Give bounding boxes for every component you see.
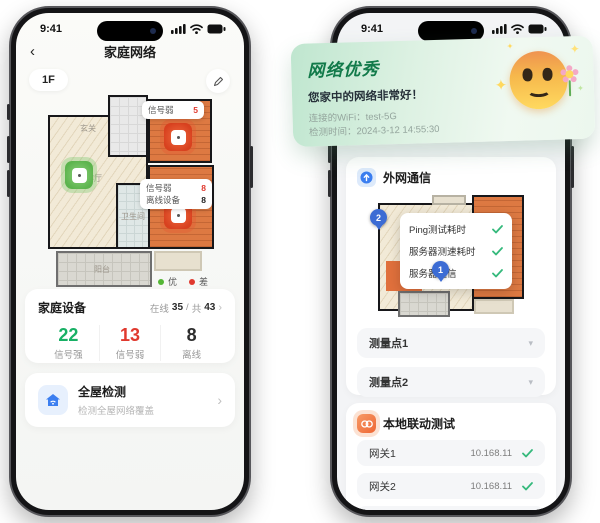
online-value: 35 — [172, 302, 183, 313]
room-label-bathroom: 卫生间 — [121, 211, 145, 222]
marker-signal-weak-top[interactable] — [164, 123, 192, 151]
gateway-ip: 10.168.11 — [470, 481, 512, 492]
status-time: 9:41 — [361, 23, 383, 35]
legend-bad-dot — [189, 279, 195, 285]
phone-left: 9:41 ‹ 家庭网络 1F — [9, 6, 251, 517]
badge-weak-top[interactable]: 信号弱 5 — [142, 101, 204, 119]
badge-label: 信号弱 — [148, 104, 174, 116]
whole-home-check-button[interactable]: 全屋检测 检测全屋网络覆盖 › — [25, 373, 235, 427]
flower-icon — [565, 70, 573, 78]
detect-subtitle: 检测全屋网络覆盖 — [78, 403, 207, 417]
mini-closet — [432, 195, 466, 205]
navbar: ‹ 家庭网络 — [16, 43, 244, 63]
network-result-card: 网络优秀 您家中的网络非常好！ 连接的WiFi：test-5G 检测时间：202… — [291, 36, 596, 147]
wan-test-card: 外网通信 2 1 Ping测试耗时 — [346, 157, 556, 395]
stat-offline: 8 离线 — [160, 325, 222, 361]
sun-eye — [522, 68, 532, 81]
tooltip-row: 服务器通信 — [409, 262, 503, 284]
chevron-right-icon: › — [217, 395, 222, 405]
sparkle-icon: ✦ — [495, 76, 508, 94]
edit-button[interactable] — [206, 69, 230, 93]
devices-title: 家庭设备 — [38, 299, 86, 316]
stat-strong: 22 信号强 — [38, 325, 99, 361]
sun-face — [509, 50, 569, 110]
battery-icon — [207, 24, 226, 34]
signal-icon — [171, 24, 186, 34]
chevron-down-icon: ▾ — [528, 377, 533, 388]
stat-weak: 13 信号弱 — [99, 325, 161, 361]
tooltip-row: Ping测试耗时 — [409, 218, 503, 240]
dynamic-island — [97, 21, 163, 41]
chevron-right-icon: › — [218, 303, 222, 313]
count-divider: / — [186, 302, 189, 313]
chevron-down-icon: ▾ — [528, 338, 533, 349]
wifi-icon — [511, 24, 524, 34]
page-title: 家庭网络 — [16, 43, 244, 63]
stat-label: 信号强 — [38, 347, 99, 361]
stat-label: 信号弱 — [100, 347, 161, 361]
badge-value: 5 — [193, 104, 198, 116]
mini-balcony — [398, 291, 450, 317]
legend: 优 差 — [158, 275, 208, 288]
power-button[interactable] — [250, 146, 253, 188]
measure-point-label: 测量点2 — [369, 374, 408, 390]
link-icon — [357, 414, 376, 433]
gateway-row-3: 网关3 10.168.11 — [357, 506, 545, 510]
check-icon — [492, 269, 503, 278]
volume-up-button[interactable] — [7, 136, 10, 163]
check-icon — [492, 225, 503, 234]
legend-good-label: 优 — [168, 275, 177, 288]
pencil-icon — [213, 76, 224, 87]
badge-label: 信号弱 — [146, 182, 172, 194]
ping-result-tooltip: Ping测试耗时 服务器测速耗时 服务器通信 — [400, 213, 512, 289]
measure-point-2-row[interactable]: 测量点2 ▾ — [357, 367, 545, 397]
gateway-row-2: 网关2 10.168.11 — [357, 473, 545, 499]
power-button[interactable] — [571, 146, 574, 188]
flower-stem — [569, 80, 571, 96]
measure-point-1-row[interactable]: 测量点1 ▾ — [357, 328, 545, 358]
check-icon — [522, 449, 533, 458]
stat-label: 离线 — [161, 347, 222, 361]
battery-icon — [528, 24, 547, 34]
sun-eye — [542, 68, 552, 81]
tooltip-label: 服务器测速耗时 — [409, 244, 476, 258]
time-value: 2024-3-12 14:55:30 — [356, 124, 439, 137]
measure-pin-1[interactable]: 1 — [432, 261, 449, 278]
wifi-value: test-5G — [365, 111, 396, 123]
sparkle-icon: ✦ — [507, 42, 514, 51]
stat-value: 22 — [38, 325, 99, 345]
lan-test-card: 本地联动测试 网关1 10.168.11 网关2 10.168.11 — [346, 403, 556, 510]
room-stoop — [154, 251, 202, 271]
lan-section-title: 本地联动测试 — [383, 415, 455, 432]
room-label-entry: 玄关 — [80, 123, 96, 134]
signal-icon — [492, 24, 507, 34]
status-icons — [492, 24, 547, 34]
badge-weak-bottom[interactable]: 信号弱 8 离线设备 8 — [140, 179, 212, 209]
gateway-ip: 10.168.11 — [470, 448, 512, 459]
marker-signal-good[interactable] — [65, 161, 93, 189]
canvas: 9:41 ‹ 家庭网络 1F — [0, 0, 600, 523]
house-wifi-icon — [38, 385, 68, 415]
stat-value: 8 — [161, 325, 222, 345]
legend-bad-label: 差 — [199, 275, 208, 288]
badge-value: 8 — [201, 182, 206, 194]
legend-good-dot — [158, 279, 164, 285]
mini-stoop — [474, 299, 514, 314]
wifi-icon — [190, 24, 203, 34]
screen-left: 9:41 ‹ 家庭网络 1F — [16, 13, 244, 510]
gateway-label: 网关1 — [369, 446, 396, 461]
badge-label: 离线设备 — [146, 194, 180, 206]
gateway-label: 网关2 — [369, 479, 396, 494]
gateway-row-1: 网关1 10.168.11 — [357, 440, 545, 466]
volume-down-button[interactable] — [328, 170, 331, 197]
devices-count-link[interactable]: 在线 35 / 共 43 › — [150, 301, 222, 315]
check-icon — [492, 247, 503, 256]
volume-down-button[interactable] — [7, 170, 10, 197]
floor-selector-pill[interactable]: 1F — [29, 69, 68, 91]
back-button[interactable]: ‹ — [30, 43, 35, 61]
time-label: 检测时间： — [309, 126, 357, 138]
measure-pin-2[interactable]: 2 — [370, 209, 387, 226]
badge-value: 8 — [201, 194, 206, 206]
stat-value: 13 — [100, 325, 161, 345]
mute-switch[interactable] — [7, 104, 10, 120]
sparkle-icon: ✦ — [570, 42, 580, 56]
measure-point-label: 测量点1 — [369, 335, 408, 351]
check-icon — [522, 482, 533, 491]
total-value: 43 — [204, 302, 215, 313]
upload-arrow-icon — [357, 168, 376, 187]
wan-section-title: 外网通信 — [383, 169, 431, 186]
devices-card: 家庭设备 在线 35 / 共 43 › 22 信号强 — [25, 289, 235, 363]
floor-plan: 玄关 厨房 客厅 卫生间 阳台 信号弱 5 信号弱 8 — [46, 95, 218, 291]
tooltip-label: Ping测试耗时 — [409, 222, 466, 236]
total-label: 共 — [192, 301, 202, 315]
status-icons — [171, 24, 226, 34]
room-label-balcony: 阳台 — [94, 264, 110, 275]
status-time: 9:41 — [40, 23, 62, 35]
smiling-sun-emoji: ✦ ✦ ✦ ✦ — [509, 50, 569, 110]
device-stats: 22 信号强 13 信号弱 8 离线 — [38, 325, 222, 361]
online-label: 在线 — [150, 301, 169, 315]
detect-title: 全屋检测 — [78, 383, 207, 400]
mini-floor-plan: 2 1 Ping测试耗时 服务器测速耗时 服务器通信 — [376, 195, 526, 319]
wifi-label: 连接的WiFi： — [309, 112, 366, 125]
sparkle-icon: ✦ — [577, 84, 584, 93]
tooltip-row: 服务器测速耗时 — [409, 240, 503, 262]
